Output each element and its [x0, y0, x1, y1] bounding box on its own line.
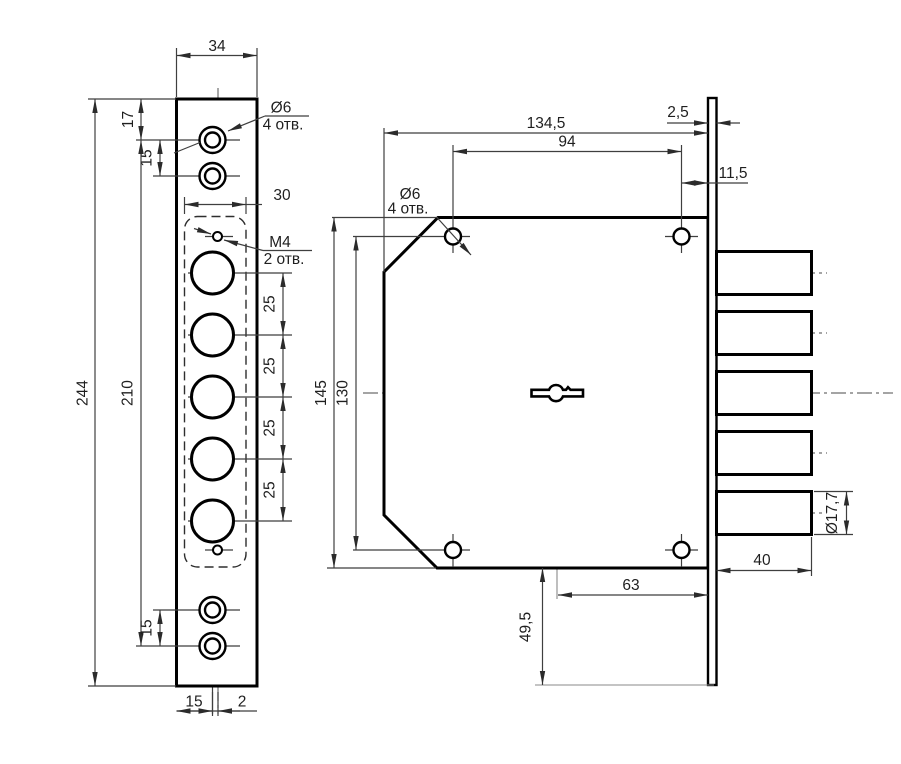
- front-hole-dia-label: Ø6: [271, 100, 292, 117]
- dim-bottom-15-2: 15 2: [177, 692, 258, 716]
- dim-circle-pitch-label: 25: [262, 419, 279, 436]
- dim-hole-top-label: 17: [120, 111, 137, 128]
- dim-circle-pitch-label: 25: [262, 295, 279, 312]
- dim-key-to-plate-end-label: 49,5: [518, 612, 535, 642]
- side-view: 134,5 94 2,5 11,5 145 130: [313, 98, 893, 685]
- side-hole-qty-label: 4 отв.: [388, 201, 429, 218]
- dim-body-width-label: 30: [273, 187, 291, 204]
- drawing-canvas: 34 244 17 15 210 15: [0, 0, 901, 764]
- dim-plate-thickness-2-5: 2,5: [667, 104, 740, 123]
- dim-bolt-dia-label: Ø17,7: [824, 492, 841, 534]
- dim-hole-to-plate-label: 11,5: [718, 165, 747, 182]
- front-view: 34 244 17 15 210 15: [75, 38, 313, 716]
- dim-edge-axis-label: 15: [185, 694, 202, 711]
- dim-pitch-top-15: 15: [139, 140, 161, 176]
- lock-technical-drawing: 34 244 17 15 210 15: [0, 0, 901, 764]
- dim-bolt-length-40: 40: [717, 537, 812, 576]
- dim-plate-thickness-label: 2,5: [667, 104, 689, 121]
- thread-label: M4: [269, 234, 291, 251]
- bolt: [717, 252, 812, 535]
- dim-width-34: 34: [177, 38, 258, 97]
- dim-hole-span-label: 94: [558, 134, 576, 151]
- dim-pitch-bottom-15: 15: [139, 610, 161, 646]
- dim-hole-span-94: 94: [453, 134, 682, 152]
- dim-width-label: 34: [208, 38, 226, 55]
- dim-body-height-label: 145: [313, 380, 330, 406]
- dim-circle-pitch-label: 25: [262, 357, 279, 374]
- dim-hole-top-17: 17: [120, 99, 141, 140]
- dim-length-label: 134,5: [527, 115, 566, 132]
- dim-key-to-edge-63: 63: [558, 577, 708, 595]
- front-hole-qty-label: 4 отв.: [263, 117, 304, 134]
- dim-hole-span-v-label: 130: [335, 380, 352, 406]
- dim-pitch-bottom-label: 15: [139, 619, 156, 636]
- dim-hole-span-v-130: 130: [335, 237, 357, 551]
- dim-span-210: 210: [120, 140, 142, 646]
- thread-qty-label: 2 отв.: [264, 251, 305, 268]
- dim-axis-offset-label: 2: [238, 694, 247, 711]
- dim-span-label: 210: [120, 380, 137, 406]
- dim-height-label: 244: [75, 380, 92, 406]
- dim-bolt-length-label: 40: [753, 552, 771, 569]
- dim-circle-pitch-label: 25: [262, 481, 279, 498]
- dim-key-to-plate-end-49-5: 49,5: [518, 568, 715, 685]
- dim-key-to-edge-label: 63: [622, 577, 639, 594]
